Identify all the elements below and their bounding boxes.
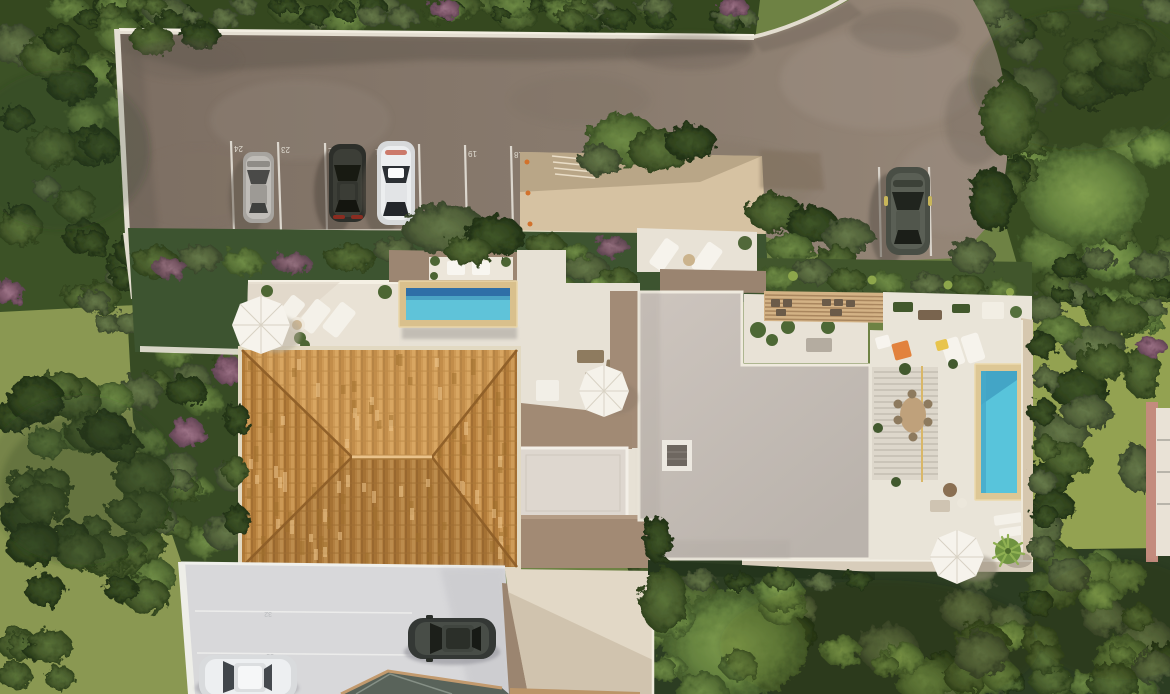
svg-text:23: 23 [281,145,290,154]
svg-text:32: 32 [264,610,272,617]
svg-text:24: 24 [234,144,243,153]
svg-text:19: 19 [468,149,477,158]
